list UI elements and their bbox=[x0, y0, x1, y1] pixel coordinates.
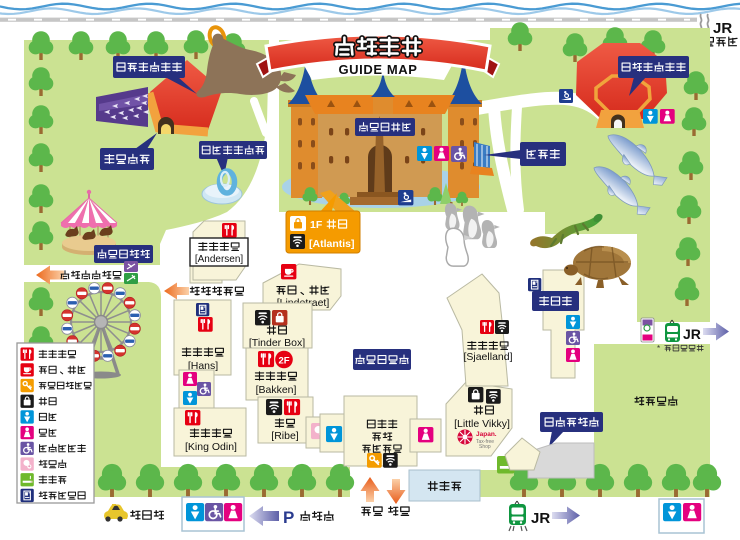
svg-text:Shop: Shop bbox=[479, 444, 491, 450]
svg-text:[Atlantis]: [Atlantis] bbox=[309, 238, 355, 250]
svg-text:JR: JR bbox=[713, 20, 732, 37]
svg-text:[King Odin]: [King Odin] bbox=[185, 441, 237, 453]
svg-text:[Sjaelland]: [Sjaelland] bbox=[463, 351, 512, 363]
svg-text:[Andersen]: [Andersen] bbox=[195, 254, 244, 265]
svg-text:JR: JR bbox=[531, 510, 550, 527]
svg-text:1F: 1F bbox=[310, 219, 323, 231]
svg-text:GUIDE MAP: GUIDE MAP bbox=[338, 62, 417, 77]
svg-text:2F: 2F bbox=[278, 356, 289, 367]
svg-text:[Little Vikky]: [Little Vikky] bbox=[454, 418, 510, 430]
svg-text:JR: JR bbox=[683, 326, 701, 342]
svg-text:[Tinder Box]: [Tinder Box] bbox=[249, 337, 305, 349]
svg-text:P: P bbox=[283, 508, 294, 527]
svg-text:*: * bbox=[657, 344, 660, 353]
svg-text:[Bakken]: [Bakken] bbox=[256, 384, 297, 396]
svg-text:[Ribe]: [Ribe] bbox=[271, 430, 299, 442]
svg-text:Japan.: Japan. bbox=[476, 431, 497, 438]
